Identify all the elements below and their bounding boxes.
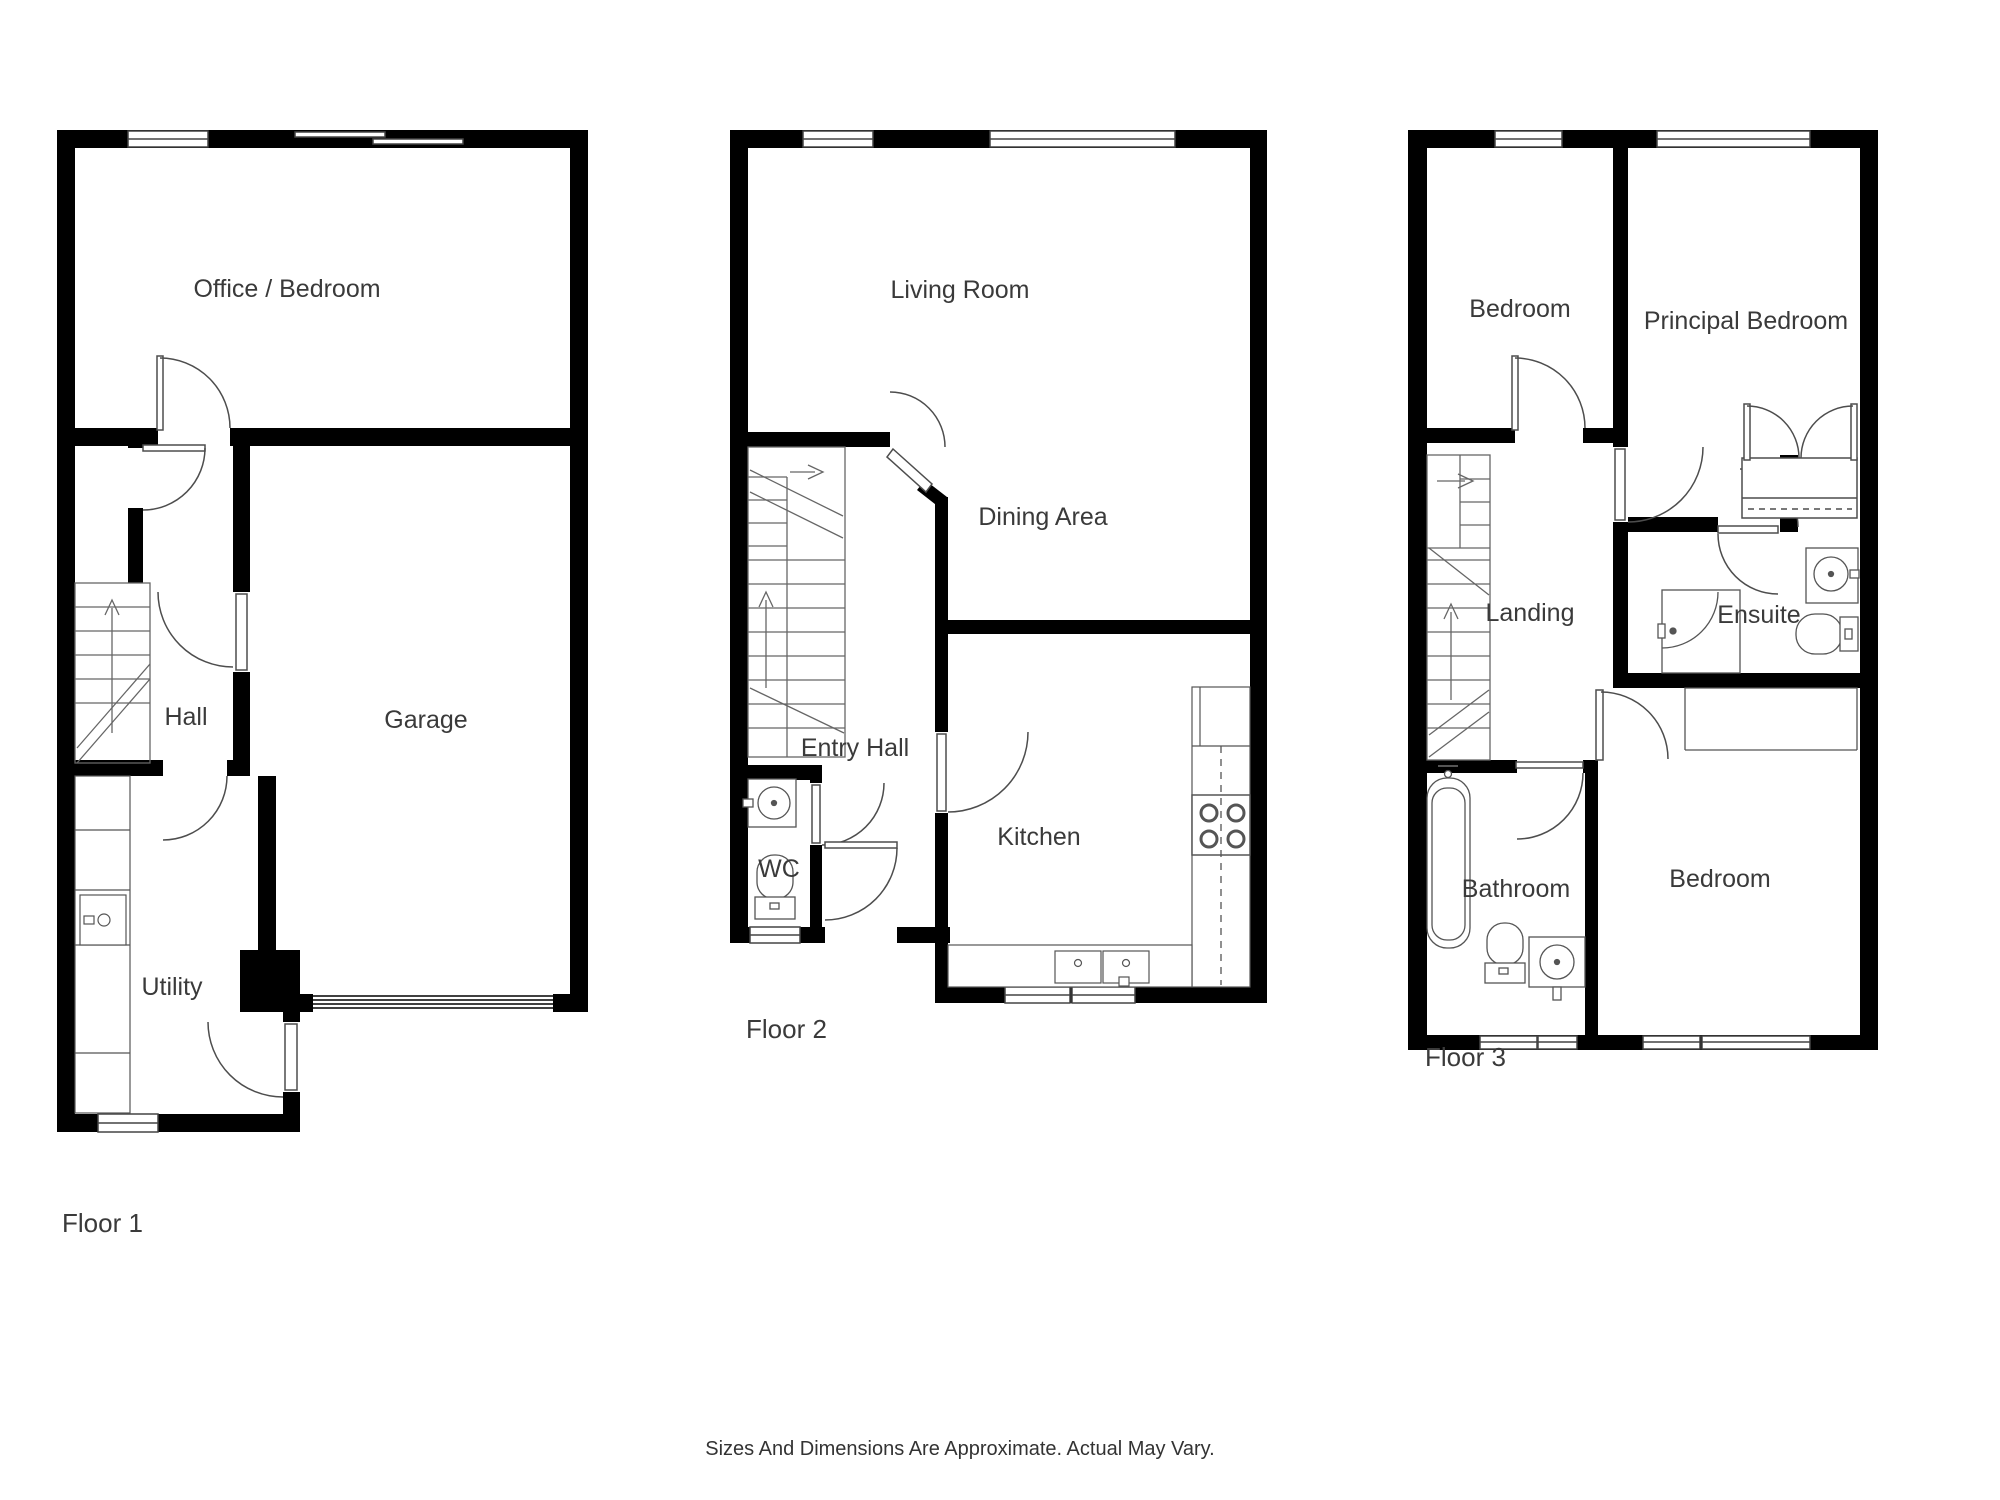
door-arc <box>208 1022 283 1097</box>
door-leaf <box>1596 690 1603 760</box>
floor3-windows <box>1480 131 1810 1049</box>
door-leaf <box>1512 356 1518 430</box>
floor2-plan: Living Room Dining Area Entry Hall WC Ki… <box>730 130 1267 1044</box>
door-leaf <box>812 785 820 843</box>
door-arc <box>825 848 897 920</box>
floor3-plan: Bedroom Principal Bedroom Landing Ensuit… <box>1408 130 1878 1072</box>
floor2-door-gaps <box>810 732 948 943</box>
door-arc <box>143 448 205 510</box>
ensuite-sink-icon <box>1806 548 1859 603</box>
stairs <box>748 447 845 757</box>
sliding-door <box>373 139 463 144</box>
door-leaf <box>825 842 897 848</box>
room-label-hall: Hall <box>164 703 207 731</box>
door-arc <box>948 732 1028 812</box>
floorplan-page: Office / Bedroom Hall Garage Utility Flo… <box>0 0 2000 1500</box>
door-leaf <box>143 445 205 451</box>
door-arc <box>1601 692 1668 759</box>
floorplan-canvas: Office / Bedroom Hall Garage Utility Flo… <box>0 0 2000 1500</box>
room-label-living: Living Room <box>891 276 1030 304</box>
room-label-ensuite: Ensuite <box>1717 601 1800 629</box>
room-label-bedroom-bottom: Bedroom <box>1669 865 1770 893</box>
floor1-plan: Office / Bedroom Hall Garage Utility Flo… <box>57 130 588 1238</box>
stairs <box>75 583 150 763</box>
door-leaf <box>1516 762 1583 768</box>
bathroom-sink-icon <box>1529 937 1585 1000</box>
room-label-office: Office / Bedroom <box>193 275 380 303</box>
room-label-bathroom: Bathroom <box>1462 875 1570 903</box>
room-label-landing: Landing <box>1486 599 1575 627</box>
door-arc <box>1718 534 1778 594</box>
floor2-title: Floor 2 <box>746 1014 827 1044</box>
sliding-door <box>295 132 385 137</box>
door-arc <box>158 592 233 667</box>
room-label-principal: Principal Bedroom <box>1644 307 1848 335</box>
floor1-title: Floor 1 <box>62 1208 143 1238</box>
disclaimer-text: Sizes And Dimensions Are Approximate. Ac… <box>705 1438 1215 1460</box>
door-leaf <box>1718 526 1778 533</box>
room-label-wc: WC <box>758 855 800 883</box>
wc-sink-icon <box>743 779 796 827</box>
room-label-utility: Utility <box>141 973 203 1001</box>
door-leaf <box>157 356 163 430</box>
floor3-title: Floor 3 <box>1425 1042 1506 1072</box>
door-arc <box>160 358 230 428</box>
door-arc <box>890 392 945 447</box>
door-leaf <box>1744 404 1750 460</box>
door-leaf <box>285 1024 297 1090</box>
utility-counter <box>75 776 130 1113</box>
room-label-dining: Dining Area <box>978 503 1107 531</box>
room-label-kitchen: Kitchen <box>997 823 1080 851</box>
ensuite-toilet-icon <box>1796 614 1858 654</box>
door-leaf <box>937 734 946 811</box>
door-arc <box>163 776 227 840</box>
door-leaf <box>887 449 932 492</box>
room-label-entry: Entry Hall <box>801 734 909 762</box>
door-arc <box>1747 406 1799 458</box>
door-leaf <box>1851 404 1857 460</box>
bathroom-toilet-icon <box>1485 923 1525 983</box>
room-label-bedroom-top: Bedroom <box>1469 295 1570 323</box>
door-arc <box>822 783 884 845</box>
washer-icon <box>80 895 126 945</box>
stairs <box>1427 455 1490 760</box>
wardrobe <box>1742 404 1857 518</box>
door-arc <box>1628 447 1703 522</box>
bedroom-wardrobe <box>1685 688 1857 750</box>
room-label-garage: Garage <box>384 706 467 734</box>
door-arc <box>1801 406 1853 458</box>
door-leaf <box>1615 449 1625 520</box>
bathtub-icon <box>1427 766 1470 948</box>
door-arc <box>1517 773 1583 839</box>
floor2-walls <box>730 130 1267 1003</box>
door-leaf <box>236 594 247 670</box>
door-arc <box>1515 358 1585 428</box>
